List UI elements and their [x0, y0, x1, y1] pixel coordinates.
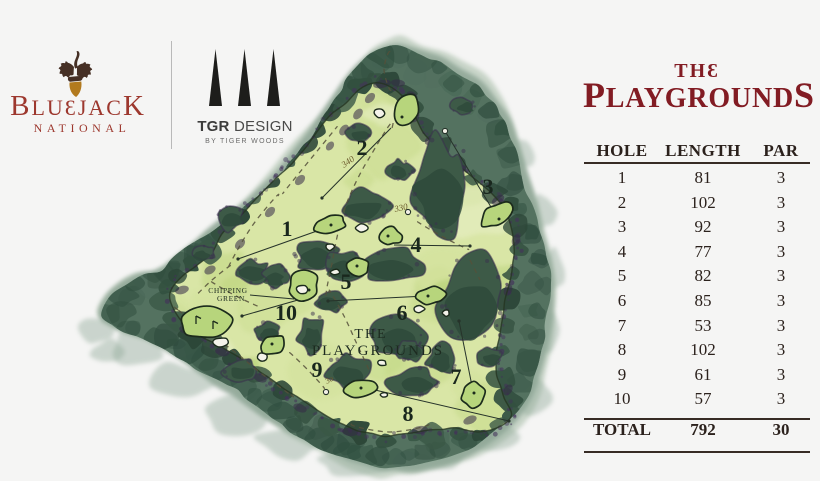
svg-text:THE: THE: [354, 327, 387, 342]
svg-text:5: 5: [341, 269, 352, 294]
svg-text:PLAYGROUNDS: PLAYGROUNDS: [312, 343, 444, 359]
svg-text:2: 2: [357, 135, 368, 160]
svg-text:8: 8: [403, 401, 414, 426]
svg-text:1: 1: [282, 216, 293, 241]
svg-text:6: 6: [397, 300, 408, 325]
svg-text:4: 4: [411, 232, 422, 257]
svg-text:7: 7: [451, 364, 462, 389]
svg-text:9: 9: [312, 357, 323, 382]
svg-text:GREEN: GREEN: [217, 294, 245, 303]
svg-text:3: 3: [483, 174, 494, 199]
svg-text:10: 10: [275, 300, 297, 325]
